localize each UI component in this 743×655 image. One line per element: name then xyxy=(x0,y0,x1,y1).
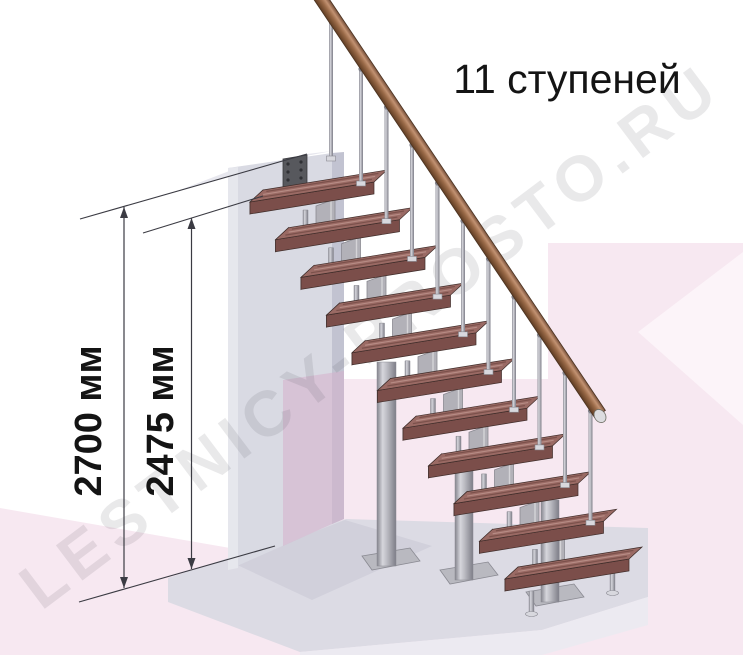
baluster-foot-8 xyxy=(561,483,570,488)
baluster-2 xyxy=(410,138,414,261)
baluster-foot-4 xyxy=(459,332,468,337)
floor-column-1 xyxy=(455,470,473,580)
plate-hole-2 xyxy=(286,170,289,173)
baluster-foot-3 xyxy=(433,294,442,299)
leg-foot-0 xyxy=(526,612,538,617)
dimension-label-2700: 2700 мм xyxy=(68,345,110,496)
tread-leg-0 xyxy=(529,591,534,614)
baluster-0 xyxy=(359,62,363,186)
baluster-foot-2 xyxy=(408,256,417,261)
baluster-6 xyxy=(512,290,516,412)
plate-hole-3 xyxy=(299,168,302,171)
baluster-foot-0 xyxy=(357,181,366,186)
page-title: 11 ступеней xyxy=(453,56,681,102)
staircase-figure: LESTNICY-PROSTO.RU 2700 мм 2475 мм 11 ст… xyxy=(0,0,743,655)
arrow-up-0 xyxy=(120,207,128,218)
baluster-3 xyxy=(436,176,440,299)
baluster-foot-7 xyxy=(535,445,544,450)
baluster-9 xyxy=(589,404,593,525)
floor-column-2 xyxy=(541,500,559,602)
leg-foot-1 xyxy=(607,591,619,596)
plate-hole-0 xyxy=(286,162,289,165)
arrow-up-1 xyxy=(188,218,196,229)
plate-hole-5 xyxy=(299,176,302,179)
dimension-label-2475: 2475 мм xyxy=(140,345,182,496)
plate-hole-1 xyxy=(299,160,302,163)
baluster-8 xyxy=(563,366,567,488)
baluster-1 xyxy=(385,100,389,224)
wall-left-edge xyxy=(228,167,238,570)
baluster-7 xyxy=(538,328,542,450)
diagram-canvas: LESTNICY-PROSTO.RU 2700 мм 2475 мм 11 ст… xyxy=(0,0,743,655)
landing-baluster xyxy=(329,16,333,160)
baluster-foot-6 xyxy=(510,407,519,412)
landing-baluster-foot xyxy=(327,156,336,161)
baluster-foot-9 xyxy=(586,520,595,525)
plate-hole-4 xyxy=(286,178,289,181)
baluster-5 xyxy=(487,252,491,375)
baluster-foot-1 xyxy=(382,219,391,224)
baluster-4 xyxy=(461,214,465,337)
baluster-foot-5 xyxy=(484,370,493,375)
